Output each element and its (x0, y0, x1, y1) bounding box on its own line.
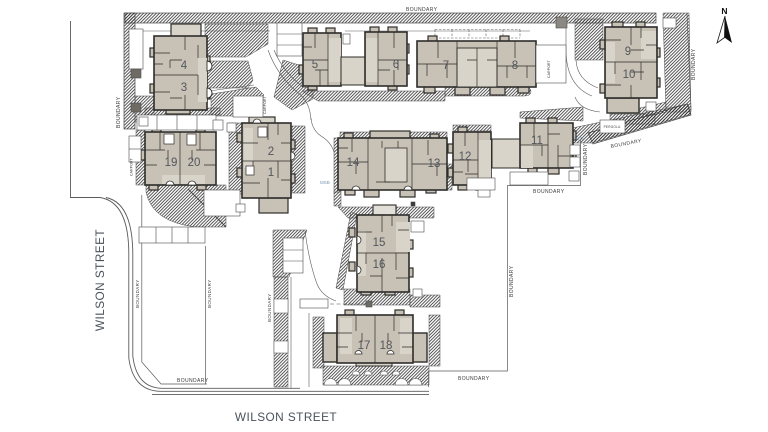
svg-text:12: 12 (459, 151, 472, 163)
svg-text:BOUNDARY: BOUNDARY (177, 378, 209, 384)
svg-text:19: 19 (165, 157, 178, 169)
svg-text:1: 1 (268, 167, 274, 179)
svg-text:11: 11 (531, 135, 543, 147)
svg-text:CARPORT: CARPORT (263, 96, 267, 114)
svg-text:HYD: HYD (574, 136, 584, 141)
svg-text:N: N (721, 6, 727, 16)
svg-text:10: 10 (623, 69, 636, 81)
svg-text:BOUNDARY: BOUNDARY (583, 143, 589, 175)
svg-text:17: 17 (358, 340, 371, 352)
svg-text:6: 6 (393, 59, 399, 71)
svg-text:8: 8 (512, 60, 518, 72)
svg-text:BOUNDARY: BOUNDARY (207, 279, 212, 308)
svg-text:5: 5 (312, 59, 318, 71)
svg-text:BOUNDARY: BOUNDARY (267, 293, 272, 322)
svg-text:CARPORT: CARPORT (130, 158, 134, 176)
svg-text:BOUNDARY: BOUNDARY (533, 189, 565, 195)
svg-text:PERGOLA: PERGOLA (604, 125, 621, 129)
svg-text:BOUNDARY: BOUNDARY (509, 265, 515, 297)
svg-text:MSB: MSB (320, 180, 330, 185)
svg-text:BOUNDARY: BOUNDARY (406, 7, 438, 13)
svg-text:18: 18 (380, 340, 393, 352)
svg-text:WILSON STREET: WILSON STREET (93, 229, 107, 331)
svg-text:BOUNDARY: BOUNDARY (116, 96, 122, 128)
svg-text:20: 20 (188, 157, 201, 169)
svg-text:BOUNDARY: BOUNDARY (135, 279, 140, 308)
svg-text:BOUNDARY: BOUNDARY (458, 376, 490, 382)
svg-text:14: 14 (347, 157, 360, 169)
svg-text:4: 4 (181, 60, 188, 72)
svg-text:15: 15 (373, 237, 386, 249)
svg-text:3: 3 (181, 82, 187, 94)
svg-text:CARPORT: CARPORT (547, 60, 551, 78)
svg-text:16: 16 (373, 259, 386, 271)
svg-text:BOUNDARY: BOUNDARY (691, 48, 697, 80)
svg-text:WILSON STREET: WILSON STREET (235, 410, 337, 424)
svg-text:13: 13 (428, 158, 441, 170)
svg-text:7: 7 (443, 60, 449, 72)
svg-text:2: 2 (268, 146, 274, 158)
svg-text:9: 9 (625, 46, 631, 58)
